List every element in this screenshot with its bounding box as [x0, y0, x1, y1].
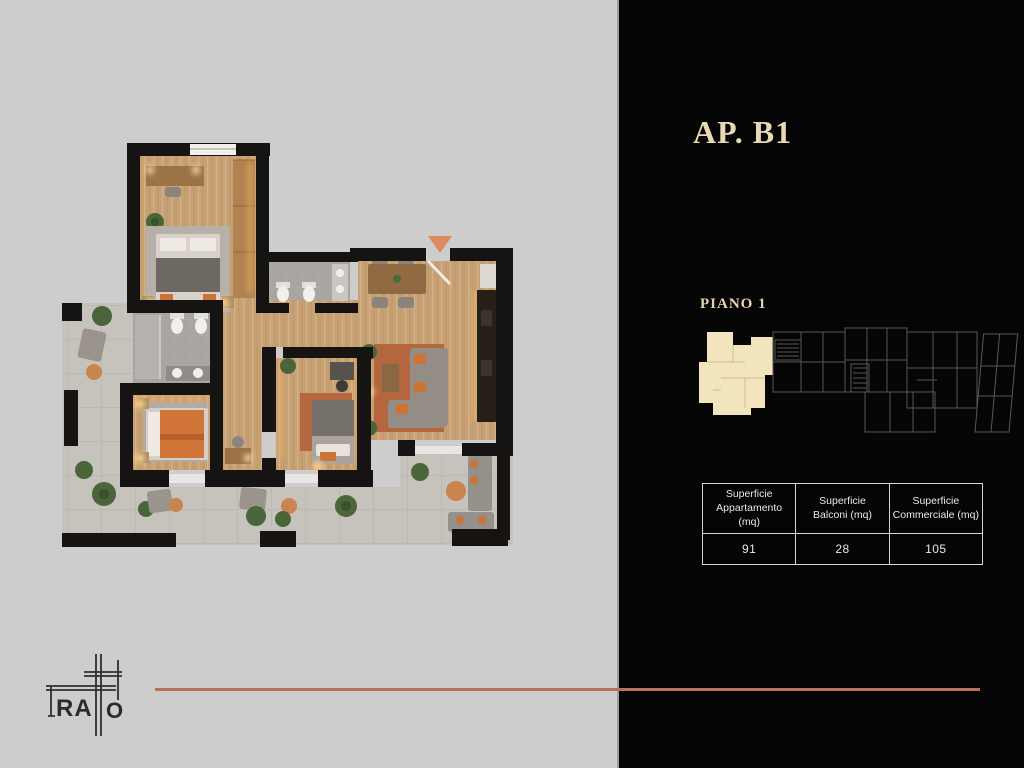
table-header-row: Superficie Appartamento (mq) Superficie …	[703, 484, 983, 534]
logo-letters-ra: RA	[56, 695, 93, 722]
shower	[135, 315, 159, 379]
header-superficie-appartamento: Superficie Appartamento (mq)	[703, 484, 796, 534]
floorplan-panel: RA O	[0, 0, 617, 768]
master-bedroom-furniture	[138, 398, 208, 463]
floor-label: PIANO 1	[700, 296, 767, 313]
table-value-row: 91 28 105	[703, 533, 983, 564]
kitchen-counter	[477, 290, 496, 422]
coffee-table	[382, 364, 399, 392]
presentation-slide: RA O AP. B1 PIANO 1	[0, 0, 1024, 768]
logo-letter-o: O	[106, 698, 123, 723]
info-panel: AP. B1 PIANO 1	[617, 0, 1024, 768]
highlighted-apartment-b1	[699, 332, 773, 415]
copper-accent-line	[155, 688, 980, 691]
value-commerciale: 105	[889, 533, 982, 564]
bidet	[303, 286, 315, 302]
outdoor-chair	[147, 488, 174, 513]
header-superficie-balconi: Superficie Balconi (mq)	[796, 484, 889, 534]
surface-area-table: Superficie Appartamento (mq) Superficie …	[702, 483, 983, 565]
plant	[280, 358, 296, 374]
header-superficie-commerciale: Superficie Commerciale (mq)	[889, 484, 982, 534]
building-outline	[773, 328, 1018, 432]
tratto-logo: RA O	[40, 650, 140, 740]
toilet	[277, 286, 289, 302]
toilet	[171, 318, 183, 334]
entrance-triangle-icon	[428, 236, 452, 253]
bidet	[195, 318, 207, 334]
apartment-title: AP. B1	[693, 114, 792, 151]
value-appartamento: 91	[703, 533, 796, 564]
value-balconi: 28	[796, 533, 889, 564]
outdoor-table	[446, 481, 466, 501]
building-keyplan	[685, 318, 1024, 440]
desk	[330, 362, 354, 380]
